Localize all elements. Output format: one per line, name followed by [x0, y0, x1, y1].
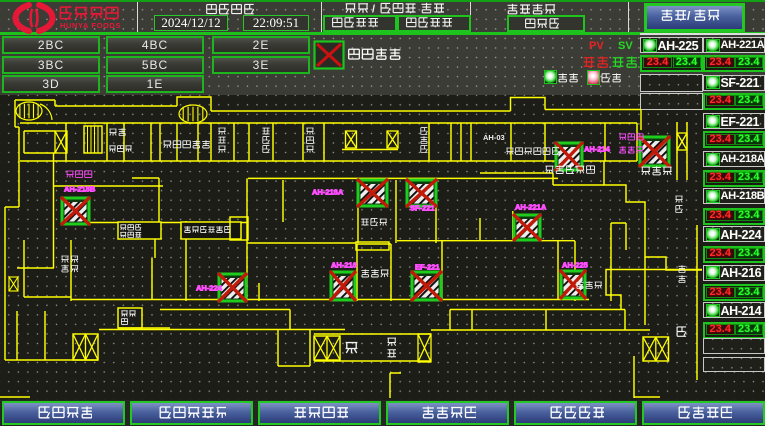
svg-text:AH-03: AH-03 — [483, 133, 505, 142]
svg-text:AH-218B: AH-218B — [64, 185, 96, 194]
svg-text:AH-216: AH-216 — [331, 261, 357, 270]
svg-text:AH-224: AH-224 — [196, 284, 223, 293]
svg-text:AH-221A: AH-221A — [515, 203, 547, 212]
svg-text:AH-218A: AH-218A — [312, 188, 344, 197]
svg-text:AH-225: AH-225 — [562, 261, 588, 270]
svg-text:AH-214: AH-214 — [584, 145, 611, 154]
svg-text:EF-221: EF-221 — [415, 263, 440, 272]
svg-text:SF-221: SF-221 — [410, 204, 435, 213]
